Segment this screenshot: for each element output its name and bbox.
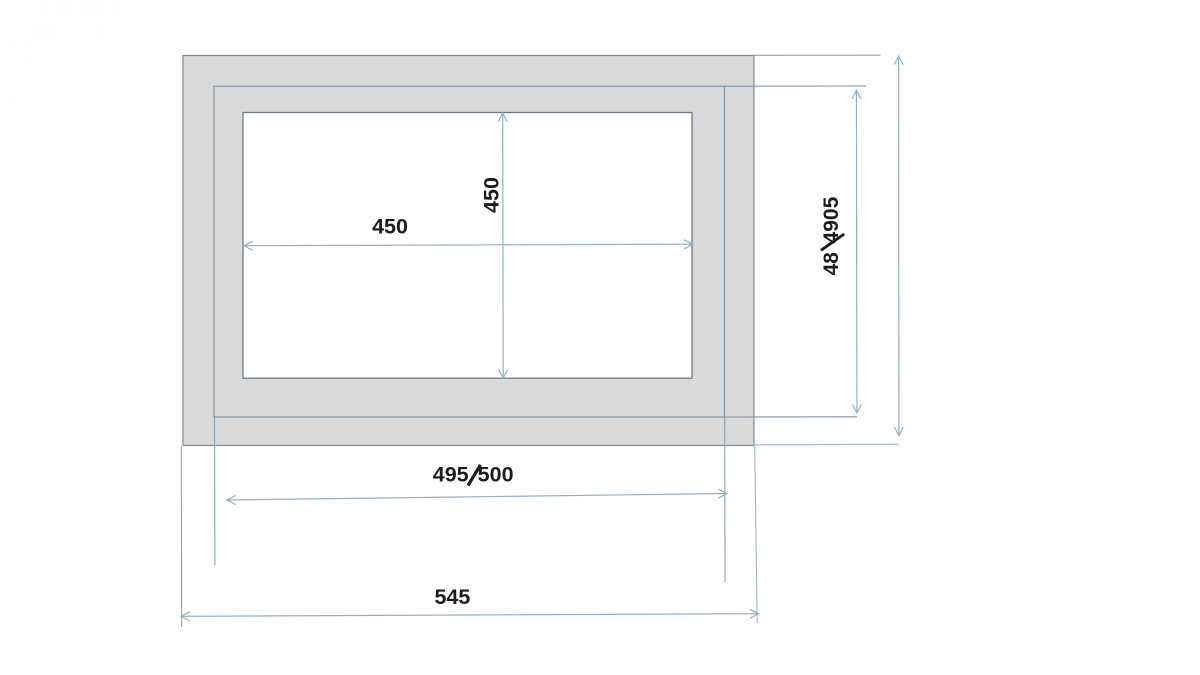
svg-text:450: 450 bbox=[480, 177, 504, 213]
svg-text:495: 495 bbox=[433, 463, 469, 487]
svg-text:4905: 4905 bbox=[820, 196, 843, 243]
svg-text:48: 48 bbox=[820, 252, 843, 276]
svg-text:500: 500 bbox=[478, 463, 514, 487]
svg-text:545: 545 bbox=[434, 585, 470, 609]
svg-text:450: 450 bbox=[372, 215, 408, 239]
